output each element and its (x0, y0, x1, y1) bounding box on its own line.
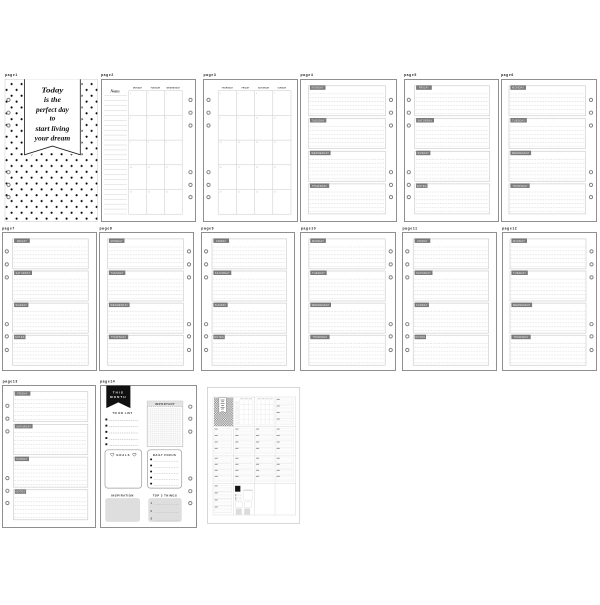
svg-text:page10: page10 (301, 227, 316, 231)
svg-text:14: 14 (148, 192, 150, 194)
svg-text:17: 17 (238, 167, 240, 169)
svg-text:THURSDAY: THURSDAY (312, 185, 327, 188)
svg-text:FRIDAY: FRIDAY (419, 87, 429, 90)
svg-text:SUNDAY: SUNDAY (418, 152, 430, 155)
svg-text:THURSDAY: THURSDAY (222, 87, 234, 90)
svg-text:WEDNESDAY: WEDNESDAY (513, 304, 531, 307)
svg-text:page2: page2 (101, 73, 114, 77)
svg-text:SUNDAY: SUNDAY (215, 304, 227, 307)
svg-text:your dream: your dream (34, 135, 71, 143)
svg-text:WEDNESDAY: WEDNESDAY (110, 304, 128, 307)
svg-text:MONDAY: MONDAY (512, 87, 524, 90)
svg-text:Notes: Notes (109, 89, 120, 94)
svg-text:13: 13 (130, 192, 132, 194)
svg-text:21: 21 (238, 192, 240, 194)
svg-text:SATURDAY: SATURDAY (215, 272, 230, 275)
svg-text:page8: page8 (100, 227, 113, 231)
svg-text:TUESDAY: TUESDAY (513, 272, 526, 275)
svg-text:TUESDAY: TUESDAY (150, 87, 160, 90)
svg-text:MONTH: MONTH (110, 395, 127, 399)
svg-text:WEDNESDAY: WEDNESDAY (167, 87, 181, 90)
svg-text:FRIDAY: FRIDAY (242, 87, 250, 90)
svg-text:TUESDAY: TUESDAY (312, 119, 325, 122)
svg-text:MONDAY: MONDAY (513, 240, 525, 243)
svg-text:FRIDAY: FRIDAY (417, 240, 427, 243)
svg-text:2: 2 (148, 93, 149, 95)
svg-text:6: 6 (166, 118, 167, 120)
svg-text:5: 5 (238, 93, 239, 95)
svg-text:4: 4 (130, 118, 131, 120)
svg-text:3: 3 (166, 93, 167, 95)
svg-text:4: 4 (220, 93, 221, 95)
svg-text:11: 11 (148, 167, 150, 169)
svg-text:7: 7 (130, 142, 131, 144)
svg-text:THIS: THIS (113, 390, 124, 394)
svg-text:Today: Today (41, 87, 64, 95)
svg-text:7: 7 (274, 93, 275, 95)
svg-text:14: 14 (256, 142, 258, 144)
svg-text:THURSDAY: THURSDAY (312, 336, 327, 339)
svg-text:is the: is the (44, 96, 62, 104)
svg-text:5: 5 (148, 118, 149, 120)
svg-text:12: 12 (220, 142, 222, 144)
svg-text:page12: page12 (502, 227, 517, 231)
svg-text:SATURDAY: SATURDAY (258, 87, 270, 90)
svg-text:MONDAY: MONDAY (111, 240, 123, 243)
svg-text:FRIDAY: FRIDAY (216, 240, 226, 243)
svg-text:8: 8 (220, 118, 221, 120)
svg-text:NOTES: NOTES (16, 491, 26, 494)
svg-text:page3: page3 (204, 73, 217, 77)
svg-text:SATURDAY: SATURDAY (416, 272, 431, 275)
svg-text:NOTES: NOTES (214, 336, 224, 339)
svg-text:perfect day: perfect day (35, 106, 70, 114)
svg-text:FRIDAY: FRIDAY (17, 393, 27, 396)
svg-text:TO DO LIST: TO DO LIST (112, 411, 132, 415)
svg-text:6: 6 (256, 93, 257, 95)
svg-text:MONDAY: MONDAY (133, 87, 143, 90)
svg-text:page6: page6 (501, 73, 514, 77)
svg-text:page4: page4 (301, 73, 314, 77)
svg-text:FRIDAY: FRIDAY (17, 240, 27, 243)
svg-text:NOTES: NOTES (415, 336, 425, 339)
svg-text:12: 12 (166, 167, 168, 169)
svg-text:10: 10 (130, 167, 132, 169)
svg-text:WEDNESDAY: WEDNESDAY (311, 152, 329, 155)
svg-text:SUNDAY: SUNDAY (16, 304, 28, 307)
svg-text:SUNDAY: SUNDAY (16, 458, 28, 461)
svg-text:TOP 3 THINGS: TOP 3 THINGS (153, 493, 178, 497)
svg-text:page1: page1 (5, 73, 18, 77)
svg-text:9: 9 (166, 142, 167, 144)
svg-text:SUNDAY: SUNDAY (278, 87, 287, 90)
svg-text:11: 11 (274, 118, 276, 120)
svg-text:SATURDAY: SATURDAY (418, 119, 433, 122)
svg-text:THURSDAY: THURSDAY (513, 336, 528, 339)
svg-text:TUESDAY: TUESDAY (111, 272, 124, 275)
svg-text:MONDAY: MONDAY (312, 87, 324, 90)
svg-text:MONDAY: MONDAY (312, 240, 324, 243)
svg-text:start living: start living (34, 125, 69, 133)
svg-text:NOTES: NOTES (15, 336, 25, 339)
svg-text:page13: page13 (3, 380, 18, 384)
svg-text:16: 16 (220, 167, 222, 169)
svg-text:TUESDAY: TUESDAY (312, 272, 325, 275)
svg-text:IMPORTANT: IMPORTANT (155, 402, 175, 406)
svg-text:WEDNESDAY: WEDNESDAY (312, 304, 330, 307)
svg-text:INSPIRATION: INSPIRATION (111, 493, 134, 497)
svg-text:page9: page9 (201, 227, 214, 231)
svg-text:THURSDAY: THURSDAY (111, 336, 126, 339)
svg-text:to: to (50, 115, 56, 123)
svg-text:15: 15 (166, 192, 168, 194)
svg-text:20: 20 (220, 192, 222, 194)
svg-text:page11: page11 (403, 227, 418, 231)
svg-text:THURSDAY: THURSDAY (512, 185, 527, 188)
svg-text:9: 9 (238, 118, 239, 120)
svg-text:SATURDAY: SATURDAY (16, 425, 31, 428)
svg-text:TUESDAY: TUESDAY (512, 119, 525, 122)
svg-text:23: 23 (274, 192, 276, 194)
svg-text:1: 1 (130, 93, 131, 95)
svg-text:SATURDAY: SATURDAY (16, 272, 31, 275)
svg-text:GOALS: GOALS (116, 453, 130, 457)
svg-text:SUNDAY: SUNDAY (416, 304, 428, 307)
svg-text:page7: page7 (2, 227, 15, 231)
svg-text:10: 10 (256, 118, 258, 120)
svg-text:WEDNESDAY: WEDNESDAY (512, 152, 530, 155)
svg-text:NOTES: NOTES (417, 185, 427, 188)
svg-text:page14: page14 (100, 380, 115, 384)
svg-text:page5: page5 (404, 73, 417, 77)
svg-text:18: 18 (256, 167, 258, 169)
svg-text:DAILY FOCUS: DAILY FOCUS (153, 453, 176, 457)
svg-text:8: 8 (148, 142, 149, 144)
svg-text:19: 19 (274, 167, 276, 169)
svg-text:13: 13 (238, 142, 240, 144)
svg-text:22: 22 (256, 192, 258, 194)
svg-text:15: 15 (274, 142, 276, 144)
